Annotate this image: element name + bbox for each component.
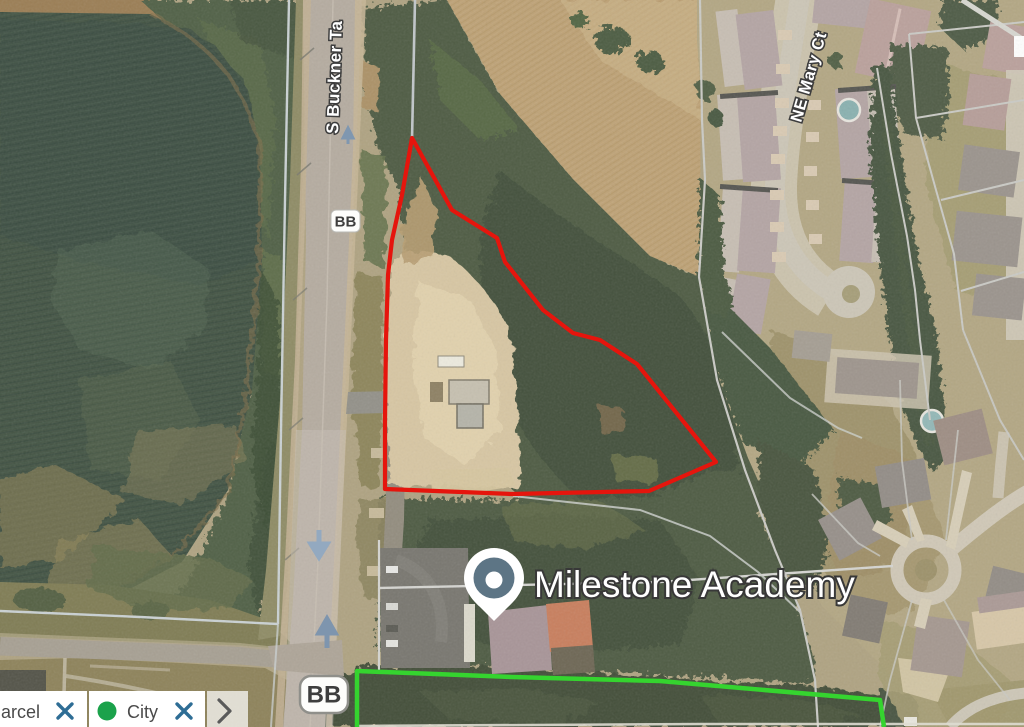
svg-text:Milestone Academy: Milestone Academy [534, 564, 855, 605]
svg-text:BB: BB [335, 214, 357, 231]
svg-text:BB: BB [307, 682, 342, 709]
svg-text:City: City [127, 702, 158, 722]
svg-text:arcel: arcel [1, 702, 40, 722]
svg-text:S Buckner Ta: S Buckner Ta [323, 20, 346, 134]
